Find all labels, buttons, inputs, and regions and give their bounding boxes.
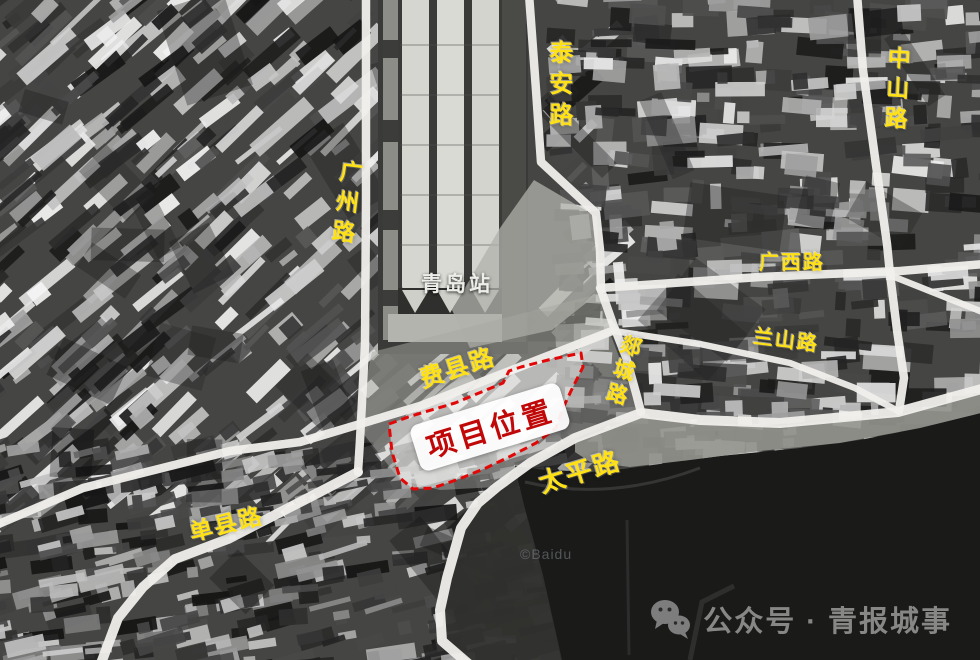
satellite-map: 青岛站 泰安路 中山路 广州路 广西路 兰山路 郯城路 费县路 太平路 单县路 … [0, 0, 980, 660]
wechat-watermark-text: 公众号 · 青报城事 [703, 598, 952, 640]
road-label-zhongshan: 中山路 [879, 45, 912, 136]
road-label-guangxi: 广西路 [759, 251, 825, 276]
wechat-icon [649, 598, 693, 640]
satellite-map-canvas [0, 0, 980, 660]
wechat-watermark: 公众号 · 青报城事 [649, 598, 952, 640]
station-label: 青岛站 [421, 268, 493, 298]
baidu-watermark: ©Baidu [520, 546, 572, 562]
road-label-taian: 泰安路 [543, 40, 573, 133]
